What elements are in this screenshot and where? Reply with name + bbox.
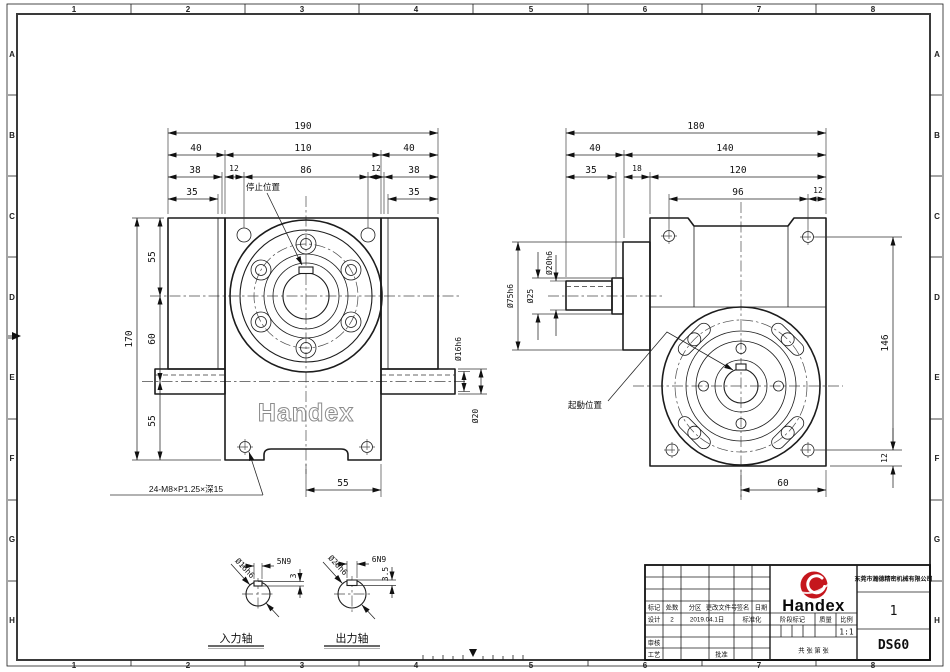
- dim-35: 35: [585, 165, 596, 176]
- zone-col-bottom: 3: [300, 661, 305, 670]
- zone-col-top: 6: [643, 5, 648, 14]
- tap-note: 24-M8×P1.25×深15: [149, 484, 223, 494]
- dim-146: 146: [880, 334, 891, 351]
- dim-55-base: 55: [337, 478, 348, 489]
- zone-row-left: B: [9, 131, 15, 140]
- tb-model: DS60: [878, 638, 909, 653]
- dim-40-right: 40: [403, 143, 415, 154]
- dim-110: 110: [294, 143, 311, 154]
- zone-col-top: 5: [529, 5, 534, 14]
- tb-scale: 比例: [840, 615, 853, 624]
- front-view-extension-lines: [132, 128, 487, 497]
- dim-140: 140: [716, 143, 733, 154]
- output-shaft-title: 出力轴: [336, 631, 369, 645]
- zone-row-left: C: [9, 212, 15, 221]
- zone-row-right: D: [934, 293, 940, 302]
- side-view-dimensions: 180 40 140 35 18 120 96 12 Ø75h6 Ø25 Ø20…: [505, 121, 893, 490]
- title-block: 标记 处数 分区 更改文件号 签名 日期 设计 2 2019.04.1日 标准化…: [645, 565, 933, 660]
- dim-collar-dia: Ø25: [525, 289, 535, 304]
- zone-col-bottom: 4: [414, 661, 419, 670]
- dim-38-left: 38: [189, 165, 201, 176]
- input-detail-depth: 3: [289, 573, 298, 578]
- dim-170: 170: [124, 330, 135, 347]
- front-view-dimensions: 190 40 110 40 38 12 86 12 38 35 35 170 5…: [110, 121, 481, 495]
- brand-logo-text: Handex: [782, 597, 845, 615]
- front-view-centerlines: [142, 196, 466, 474]
- zone-col-bottom: 6: [643, 661, 648, 670]
- zone-row-left: H: [9, 616, 15, 625]
- zone-col-top: 7: [757, 5, 762, 14]
- dim-96: 96: [732, 187, 744, 198]
- zone-col-top: 8: [871, 5, 876, 14]
- side-view: 180 40 140 35 18 120 96 12 Ø75h6 Ø25 Ø20…: [505, 121, 902, 500]
- dim-55-top: 55: [147, 251, 158, 262]
- tb-design-date: 2019.04.1日: [690, 616, 724, 624]
- title-block-labels: 标记 处数 分区 更改文件号 签名 日期 设计 2 2019.04.1日 标准化…: [648, 575, 933, 659]
- tb-check: 审核: [648, 638, 661, 647]
- dim-12: 12: [813, 186, 823, 195]
- zone-row-right: F: [935, 454, 940, 463]
- zone-row-right: B: [934, 131, 940, 140]
- zone-col-top: 1: [72, 5, 77, 14]
- dim-60: 60: [777, 478, 789, 489]
- tb-sheet-no: 1: [890, 604, 898, 619]
- input-detail-dia: Ø16h6: [233, 556, 257, 581]
- output-key-slot: [299, 267, 313, 274]
- tb-count: 处数: [666, 603, 679, 612]
- drawing-sheet: 1 2 3 4 5 6 7 8 1 2 3 4 5 6 7 8 A B C D …: [0, 0, 950, 672]
- dim-input-shaft-dia: Ø16h6: [453, 337, 463, 361]
- zone-row-right: A: [934, 50, 940, 59]
- zone-row-left: F: [10, 454, 15, 463]
- output-detail-dia: Ø20h6: [326, 553, 350, 578]
- tb-stage: 阶段标记: [780, 615, 806, 624]
- dim-40-left: 40: [190, 143, 202, 154]
- tb-design-sign: 2: [670, 617, 674, 624]
- brand-logo: Handex: [782, 572, 845, 616]
- dim-12-flange: 12: [880, 453, 889, 463]
- tb-doc: 更改文件号: [706, 603, 737, 612]
- zone-row-left: E: [9, 373, 15, 382]
- tb-date: 日期: [755, 604, 768, 612]
- output-shaft-detail: Ø20h6 6N9 3.5 出力轴: [323, 553, 396, 649]
- dim-120: 120: [729, 165, 746, 176]
- zone-col-top: 3: [300, 5, 305, 14]
- tb-company: 东莞市瀚德精密机械有限公司: [854, 575, 932, 583]
- dim-86: 86: [300, 165, 312, 176]
- dim-190: 190: [294, 121, 311, 132]
- dim-60: 60: [147, 333, 158, 345]
- dim-35-left: 35: [186, 187, 197, 198]
- input-key-slot: [736, 364, 746, 370]
- zone-col-top: 2: [186, 5, 191, 14]
- dim-35-right: 35: [408, 187, 419, 198]
- side-view-centerlines: [548, 202, 843, 500]
- drawing-canvas: 1 2 3 4 5 6 7 8 1 2 3 4 5 6 7 8 A B C D …: [0, 0, 950, 672]
- zone-col-bottom: 5: [529, 661, 534, 670]
- zone-row-left: D: [9, 293, 15, 302]
- zone-row-right: E: [934, 373, 940, 382]
- tb-approve: 批准: [715, 650, 728, 659]
- tb-zone: 分区: [689, 603, 702, 612]
- start-position-label: 起動位置: [568, 400, 603, 410]
- tb-design: 设计: [648, 615, 661, 624]
- zone-col-bottom: 8: [871, 661, 876, 670]
- dim-38-right: 38: [408, 165, 420, 176]
- tb-scale-value: 1:1: [839, 628, 854, 637]
- stop-position-label: 停止位置: [246, 182, 281, 192]
- zone-col-bottom: 1: [72, 661, 77, 670]
- side-view-body: [566, 218, 826, 466]
- tb-sheets: 共 张 第 张: [798, 646, 829, 655]
- dim-40: 40: [589, 143, 601, 154]
- embossed-brand: Handex: [258, 399, 354, 427]
- dim-12-right: 12: [371, 164, 381, 173]
- dim-55-bottom: 55: [147, 415, 158, 426]
- dim-boss-dia: Ø20: [470, 409, 480, 424]
- side-view-extension-lines: [512, 128, 902, 497]
- output-detail-depth: 3.5: [381, 567, 390, 582]
- input-shaft-title: 入力轴: [220, 631, 253, 645]
- tb-sign: 签名: [737, 603, 750, 612]
- zone-row-right: G: [934, 535, 940, 544]
- zone-col-bottom: 7: [757, 661, 762, 670]
- zone-col-bottom: 2: [186, 661, 191, 670]
- tb-mark: 标记: [648, 603, 661, 612]
- zone-row-left: A: [9, 50, 15, 59]
- dim-shaft-dia: Ø20h6: [544, 251, 554, 275]
- dim-18: 18: [632, 164, 642, 173]
- tb-standardize: 标准化: [743, 615, 763, 624]
- input-shaft-detail: Ø16h6 5N9 3 入力轴: [208, 556, 304, 649]
- dim-12-left: 12: [229, 164, 239, 173]
- dim-pilot-dia: Ø75h6: [505, 284, 515, 308]
- front-view: Handex 190 40 110 40 38 12 86 12 38 35: [110, 121, 487, 497]
- input-detail-key: 5N9: [277, 557, 292, 566]
- front-view-body: Handex: [155, 218, 455, 460]
- tb-process: 工艺: [648, 651, 661, 659]
- zone-col-top: 4: [414, 5, 419, 14]
- zone-row-left: G: [9, 535, 15, 544]
- zone-row-right: C: [934, 212, 940, 221]
- dim-180: 180: [687, 121, 704, 132]
- tb-weight: 质量: [819, 615, 832, 624]
- zone-row-right: H: [934, 616, 940, 625]
- output-detail-key: 6N9: [372, 555, 387, 564]
